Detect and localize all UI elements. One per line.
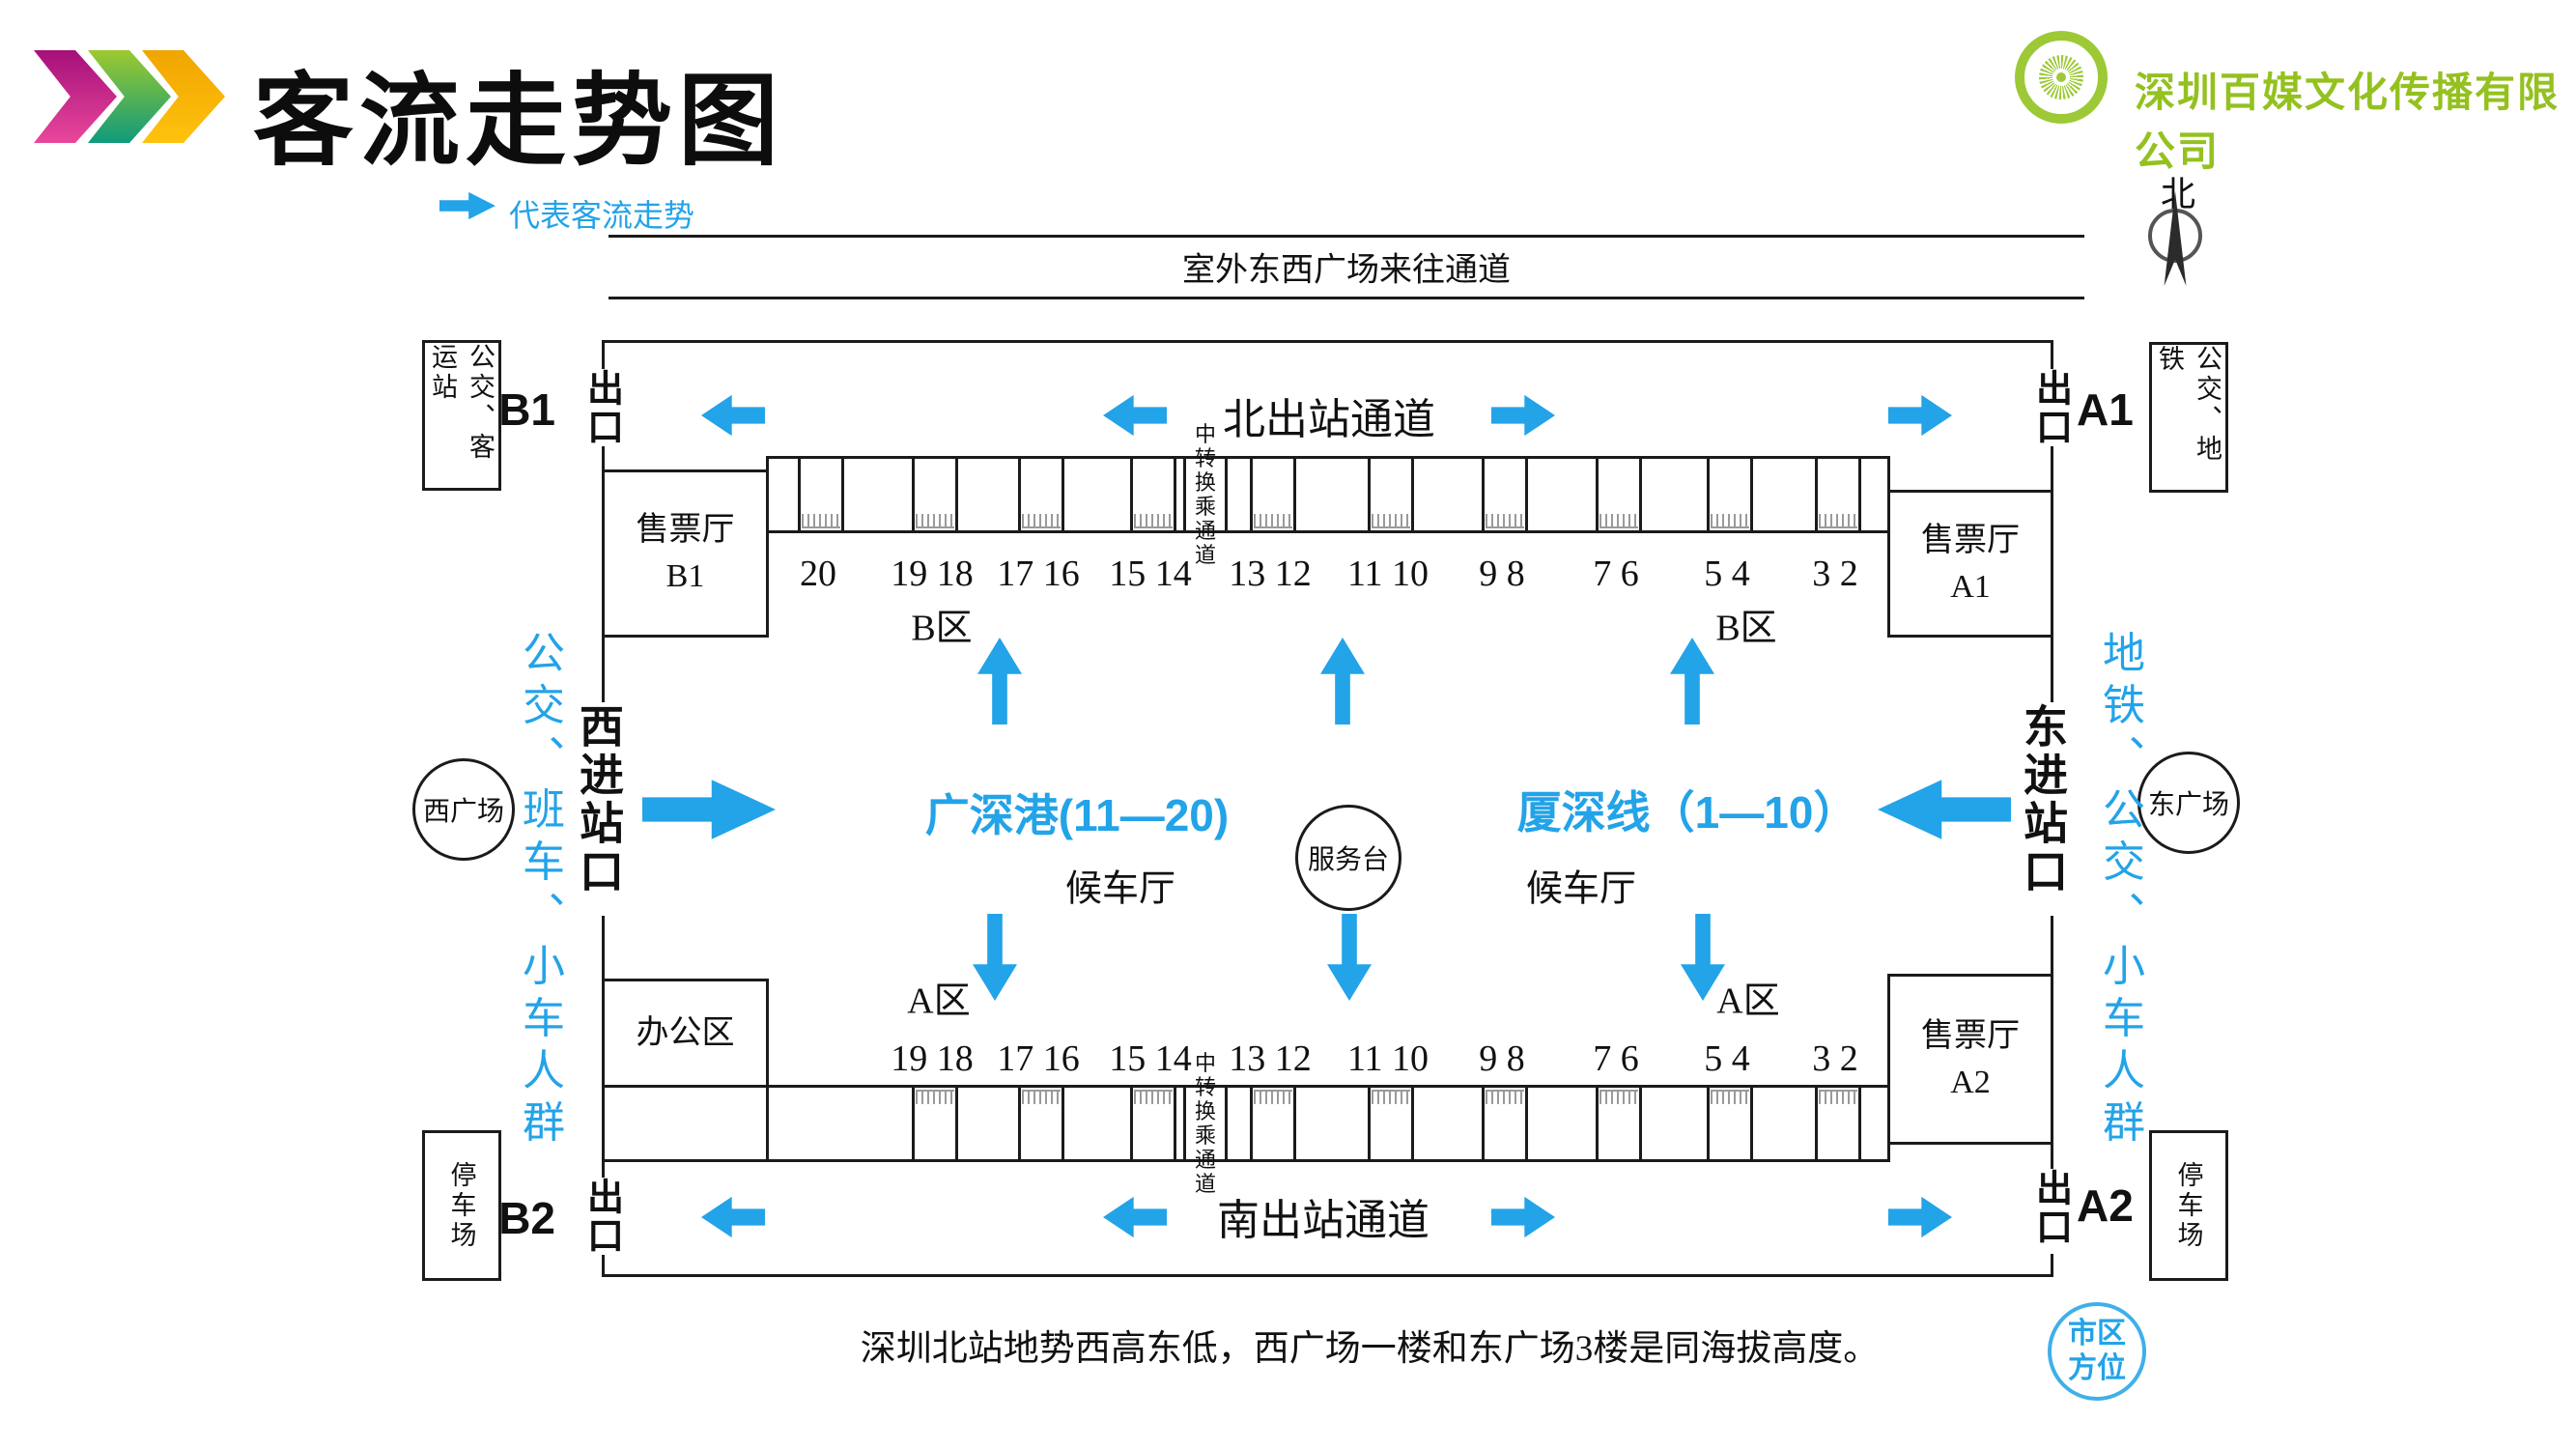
exit-a1-label: 出口: [2024, 369, 2078, 446]
exit-a2-label: 出口: [2024, 1169, 2078, 1246]
box-bus-metro: 公交、地铁: [2149, 342, 2228, 493]
company-logo-icon: [2015, 31, 2108, 124]
west-line-label: 广深港(11—20): [925, 781, 1229, 844]
title-chevrons-icon: [34, 50, 196, 148]
box-parking-west: 停车场: [422, 1130, 501, 1281]
zone-b-right-label: B区: [1715, 598, 1776, 651]
platform-bay: [1368, 1088, 1414, 1159]
platform-number: 5 4: [1704, 553, 1750, 595]
platform-number: 11 10: [1347, 1037, 1429, 1080]
platform-bay: [1482, 459, 1528, 530]
transfer-passage-north: 中转换乘通道: [1183, 459, 1228, 530]
platform-number: 19 18: [891, 553, 974, 595]
platform-number: 20: [800, 553, 836, 595]
city-direction-badge: 市区 方位: [2048, 1302, 2146, 1401]
east-plaza: 东广场: [2137, 752, 2240, 854]
platform-number: 7 6: [1593, 553, 1639, 595]
platform-bay: [1018, 1088, 1064, 1159]
west-flow-label: 公交、班车、小车人群: [513, 631, 565, 1157]
platform-bay: [1130, 1088, 1176, 1159]
exit-b2-code: B2: [498, 1192, 555, 1244]
exit-a2-code: A2: [2077, 1179, 2134, 1232]
waiting-hall-east-label: 候车厅: [1526, 859, 1636, 912]
platform-bay: [1596, 459, 1642, 530]
platform-bay: [1815, 459, 1861, 530]
legend-label: 代表客流走势: [509, 191, 694, 236]
platform-bay: [1596, 1088, 1642, 1159]
east-gate-label: 东进站口: [2011, 703, 2075, 916]
ticket-hall-a2: 售票厅A2: [1887, 974, 2053, 1145]
platform-strip-north: 中转换乘通道: [766, 456, 1890, 533]
zone-b-left-label: B区: [911, 598, 972, 651]
platform-bay: [1482, 1088, 1528, 1159]
platform-number: 15 14: [1109, 1037, 1192, 1080]
exit-a1-code: A1: [2077, 384, 2134, 436]
outside-corridor-bottom-line: [609, 297, 2084, 299]
box-bus-coach-station: 公交、客运站: [422, 340, 501, 491]
footnote: 深圳北站地势西高东低，西广场一楼和东广场3楼是同海拔高度。: [861, 1319, 1880, 1371]
platform-number: 3 2: [1812, 553, 1858, 595]
platform-bay: [1250, 1088, 1296, 1159]
platform-bay: [1368, 459, 1414, 530]
box-parking-east: 停车场: [2149, 1130, 2228, 1281]
page-title: 客流走势图: [253, 39, 784, 185]
platform-bay: [1707, 459, 1753, 530]
transfer-passage-south: 中转换乘通道: [1183, 1088, 1228, 1159]
waiting-hall-west-label: 候车厅: [1065, 859, 1175, 912]
exit-b1-label: 出口: [576, 369, 629, 446]
outside-corridor-label: 室外东西广场来往通道: [1182, 243, 1511, 291]
service-desk: 服务台: [1295, 805, 1401, 911]
west-gate-label: 西进站口: [567, 703, 631, 916]
platform-bay: [1130, 459, 1176, 530]
ticket-hall-a1: 售票厅A1: [1887, 490, 2053, 638]
platform-number: 3 2: [1812, 1037, 1858, 1080]
platform-number: 9 8: [1479, 553, 1525, 595]
company-name: 深圳百媒文化传播有限公司: [2135, 60, 2576, 178]
platform-bay: [1018, 459, 1064, 530]
platform-bay: [912, 459, 958, 530]
platform-number: 17 16: [997, 1037, 1080, 1080]
platform-number: 7 6: [1593, 1037, 1639, 1080]
platform-number: 13 12: [1229, 553, 1312, 595]
east-flow-label: 地铁、公交、小车人群: [2093, 631, 2145, 1157]
ticket-hall-b1: 售票厅B1: [602, 469, 769, 638]
south-corridor-label: 南出站通道: [1217, 1185, 1430, 1247]
platform-strip-south: 中转换乘通道: [766, 1085, 1890, 1162]
platform-number: 11 10: [1347, 553, 1429, 595]
west-plaza: 西广场: [412, 758, 515, 861]
platform-bay: [912, 1088, 958, 1159]
exit-b2-label: 出口: [576, 1178, 629, 1255]
platform-number: 19 18: [891, 1037, 974, 1080]
legend-flow-arrow-icon: [439, 190, 495, 221]
platform-bay: [1815, 1088, 1861, 1159]
platform-number: 9 8: [1479, 1037, 1525, 1080]
platform-number: 5 4: [1704, 1037, 1750, 1080]
zone-a-left-label: A区: [907, 971, 970, 1024]
platform-bay: [1707, 1088, 1753, 1159]
office-area-outline: [602, 979, 769, 1162]
platform-bay: [1250, 459, 1296, 530]
east-line-label: 厦深线（1—10）: [1517, 778, 1858, 841]
north-corridor-label: 北出站通道: [1223, 384, 1435, 446]
platform-number: 15 14: [1109, 553, 1192, 595]
outside-corridor-top-line: [609, 235, 2084, 238]
platform-number: 17 16: [997, 553, 1080, 595]
passenger-flow-diagram: 客流走势图 深圳百媒文化传播有限公司 北 代表客流走势 室外东西广场来往通道 公…: [0, 0, 2576, 1449]
exit-b1-code: B1: [498, 384, 555, 436]
platform-number: 13 12: [1229, 1037, 1312, 1080]
zone-a-right-label: A区: [1716, 971, 1779, 1024]
platform-bay: [798, 459, 844, 530]
